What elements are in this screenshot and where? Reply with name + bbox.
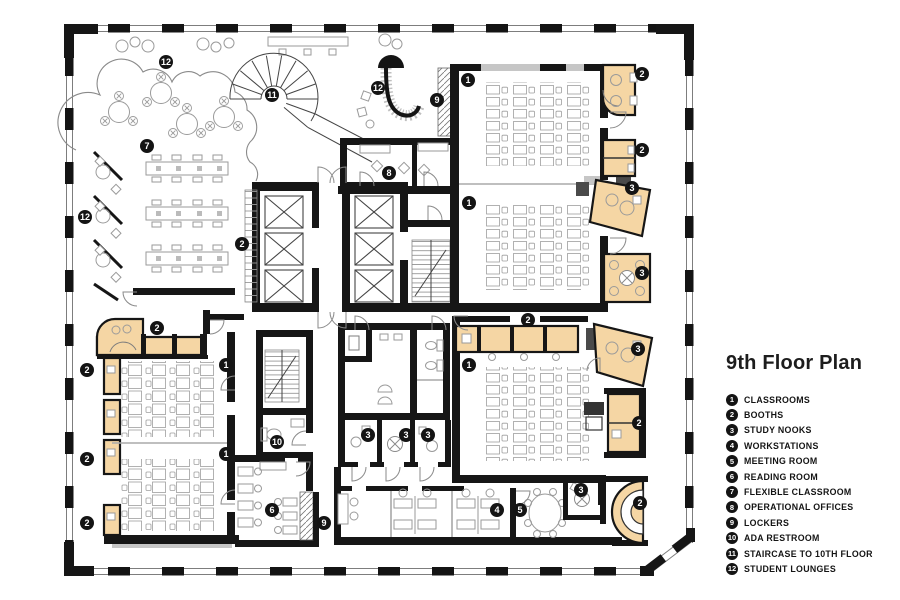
room-badge-1: 1	[461, 73, 475, 87]
legend-number-badge: 11	[726, 548, 738, 560]
room-badge-10: 10	[270, 435, 284, 449]
zone-core-restrooms	[203, 310, 450, 420]
legend-label: FLEXIBLE CLASSROOM	[744, 487, 852, 497]
legend-item: 6READING ROOM	[726, 469, 896, 484]
legend-label: ADA RESTROOM	[744, 533, 820, 543]
legend-label: CLASSROOMS	[744, 395, 810, 405]
zone-reading-room	[235, 455, 319, 547]
room-badge-2: 2	[150, 321, 164, 335]
zone-study-nooks-row	[338, 420, 451, 467]
elevator-cores	[245, 182, 458, 312]
legend-number-badge: 1	[726, 394, 738, 406]
room-badge-2: 2	[235, 237, 249, 251]
legend-item: 7FLEXIBLE CLASSROOM	[726, 484, 896, 499]
room-badge-2: 2	[633, 496, 647, 510]
room-badge-5: 5	[513, 503, 527, 517]
legend-item: 5MEETING ROOM	[726, 454, 896, 469]
zone-stair-ada	[256, 330, 313, 458]
room-badge-9: 9	[430, 93, 444, 107]
legend-label: OPERATIONAL OFFICES	[744, 502, 853, 512]
legend-number-badge: 7	[726, 486, 738, 498]
legend-panel: 9th Floor Plan 1CLASSROOMS2BOOTHS3STUDY …	[726, 352, 896, 577]
legend-item: 3STUDY NOOKS	[726, 423, 896, 438]
room-badge-2: 2	[80, 363, 94, 377]
legend-number-badge: 8	[726, 501, 738, 513]
legend-label: STAIRCASE TO 10TH FLOOR	[744, 549, 873, 559]
legend-item: 12STUDENT LOUNGES	[726, 561, 896, 576]
legend-number-badge: 5	[726, 455, 738, 467]
zone-classrooms-bottomleft	[97, 319, 239, 548]
legend-label: STUDENT LOUNGES	[744, 564, 836, 574]
room-badge-6: 6	[265, 503, 279, 517]
zone-flexible-classroom	[58, 34, 402, 300]
legend-item: 9LOCKERS	[726, 515, 896, 530]
spiral-staircase	[230, 53, 381, 162]
legend-label: WORKSTATIONS	[744, 441, 819, 451]
legend-number-badge: 4	[726, 440, 738, 452]
legend-number-badge: 9	[726, 517, 738, 529]
legend-label: BOOTHS	[744, 410, 783, 420]
room-badge-2: 2	[80, 516, 94, 530]
room-badge-1: 1	[462, 196, 476, 210]
legend-label: STUDY NOOKS	[744, 425, 812, 435]
legend-number-badge: 3	[726, 424, 738, 436]
legend-item: 8OPERATIONAL OFFICES	[726, 500, 896, 515]
desk-cluster	[394, 489, 436, 534]
room-badge-1: 1	[462, 358, 476, 372]
legend-number-badge: 10	[726, 532, 738, 544]
room-badge-12: 12	[78, 210, 92, 224]
plan-title: 9th Floor Plan	[726, 352, 896, 375]
legend-list: 1CLASSROOMS2BOOTHS3STUDY NOOKS4WORKSTATI…	[726, 392, 896, 577]
zone-classroom-bottomright	[452, 316, 652, 483]
legend-number-badge: 12	[726, 563, 738, 575]
room-badge-3: 3	[625, 181, 639, 195]
legend-label: MEETING ROOM	[744, 456, 818, 466]
legend-item: 4WORKSTATIONS	[726, 438, 896, 453]
room-badge-9: 9	[317, 516, 331, 530]
legend-item: 1CLASSROOMS	[726, 392, 896, 407]
legend-number-badge: 2	[726, 409, 738, 421]
room-badge-3: 3	[421, 428, 435, 442]
floor-plan-page: 121112912782311223223112233310123264529 …	[0, 0, 900, 600]
legend-item: 10ADA RESTROOM	[726, 531, 896, 546]
room-badge-4: 4	[490, 503, 504, 517]
room-badge-12: 12	[159, 55, 173, 69]
room-badge-2: 2	[632, 416, 646, 430]
room-badge-3: 3	[631, 342, 645, 356]
room-badge-3: 3	[635, 266, 649, 280]
room-badge-1: 1	[219, 358, 233, 372]
room-badge-2: 2	[80, 452, 94, 466]
room-badge-3: 3	[574, 483, 588, 497]
room-badge-12: 12	[371, 81, 385, 95]
room-badge-8: 8	[382, 166, 396, 180]
legend-item: 2BOOTHS	[726, 407, 896, 422]
legend-label: LOCKERS	[744, 518, 789, 528]
room-badge-11: 11	[265, 88, 279, 102]
room-badge-1: 1	[219, 447, 233, 461]
room-badge-2: 2	[635, 143, 649, 157]
legend-item: 11STAIRCASE TO 10TH FLOOR	[726, 546, 896, 561]
room-badge-7: 7	[140, 139, 154, 153]
room-badge-3: 3	[361, 428, 375, 442]
legend-number-badge: 6	[726, 471, 738, 483]
legend-label: READING ROOM	[744, 472, 818, 482]
room-badge-2: 2	[635, 67, 649, 81]
room-badge-3: 3	[399, 428, 413, 442]
room-badge-2: 2	[521, 313, 535, 327]
